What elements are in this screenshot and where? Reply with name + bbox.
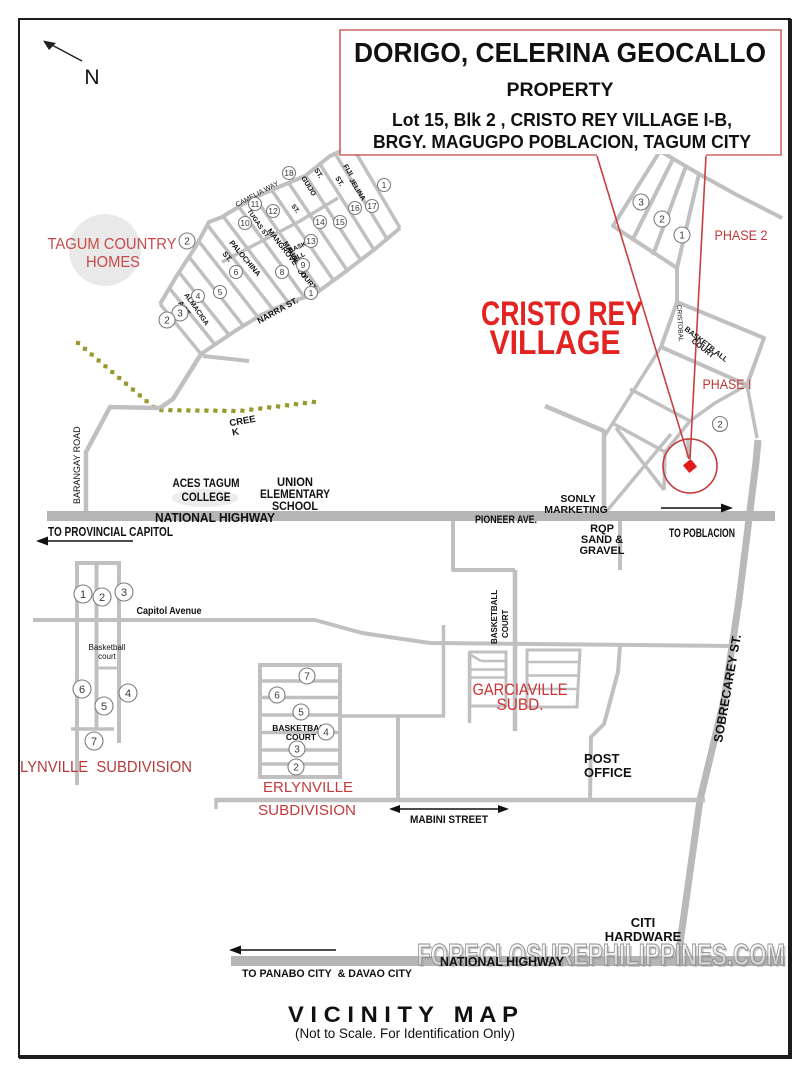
svg-text:2: 2	[293, 763, 299, 774]
svg-text:2: 2	[99, 592, 105, 604]
svg-text:PHASE 2: PHASE 2	[715, 227, 768, 243]
svg-text:Basketball: Basketball	[89, 643, 126, 652]
svg-text:MARKETING: MARKETING	[544, 504, 608, 516]
svg-text:BASKETBALL: BASKETBALL	[490, 590, 499, 644]
svg-text:Lot 15, Blk 2 , CRISTO REY VIL: Lot 15, Blk 2 , CRISTO REY VILLAGE I-B,	[392, 110, 732, 130]
svg-text:HOMES: HOMES	[86, 254, 140, 271]
svg-text:12: 12	[268, 206, 278, 216]
svg-text:TAGUM COUNTRY: TAGUM COUNTRY	[48, 236, 177, 253]
svg-text:SUBDIVISION: SUBDIVISION	[258, 802, 356, 819]
svg-text:7: 7	[304, 672, 310, 683]
svg-text:POST: POST	[584, 751, 619, 766]
svg-text:2: 2	[184, 237, 190, 248]
svg-text:court: court	[98, 652, 117, 661]
svg-text:17: 17	[367, 201, 377, 211]
svg-text:4: 4	[196, 291, 201, 301]
svg-text:1: 1	[309, 288, 314, 298]
svg-text:3: 3	[638, 198, 644, 209]
svg-text:GRAVEL: GRAVEL	[579, 545, 624, 557]
svg-text:6: 6	[274, 691, 280, 702]
svg-text:PROPERTY: PROPERTY	[507, 80, 614, 101]
svg-text:5: 5	[101, 701, 107, 713]
svg-text:COURT: COURT	[286, 732, 317, 742]
svg-text:2: 2	[164, 316, 170, 327]
svg-text:2: 2	[659, 215, 665, 226]
svg-text:N: N	[84, 66, 99, 89]
svg-text:VILLAGE: VILLAGE	[490, 324, 621, 362]
svg-text:6: 6	[234, 267, 239, 277]
svg-text:9: 9	[301, 260, 306, 270]
svg-text:COLLEGE: COLLEGE	[182, 490, 231, 504]
svg-text:11: 11	[251, 199, 260, 209]
svg-text:SUBD.: SUBD.	[497, 695, 544, 714]
svg-text:MABINI STREET: MABINI STREET	[410, 814, 488, 826]
svg-text:13: 13	[306, 236, 316, 246]
svg-text:PIONEER AVE.: PIONEER AVE.	[475, 514, 537, 526]
svg-text:TO PANABO CITY & DAVAO CITY: TO PANABO CITY & DAVAO CITY	[242, 968, 413, 980]
svg-text:14: 14	[315, 217, 325, 227]
svg-text:LYNVILLE SUBDIVISION: LYNVILLE SUBDIVISION	[20, 759, 192, 776]
svg-text:NATIONAL HIGHWAY: NATIONAL HIGHWAY	[440, 955, 565, 969]
svg-text:2: 2	[717, 419, 722, 430]
svg-text:6: 6	[79, 684, 85, 696]
svg-text:(Not to Scale. For Identificat: (Not to Scale. For Identification Only)	[295, 1026, 515, 1041]
svg-text:10: 10	[240, 218, 250, 228]
svg-text:CITI: CITI	[631, 915, 656, 930]
svg-text:TO POBLACION: TO POBLACION	[669, 528, 735, 540]
svg-text:Capitol Avenue: Capitol Avenue	[137, 605, 202, 617]
svg-text:18: 18	[284, 168, 294, 178]
svg-text:5: 5	[218, 287, 223, 297]
svg-text:NATIONAL HIGHWAY: NATIONAL HIGHWAY	[155, 510, 275, 525]
svg-text:7: 7	[91, 736, 97, 748]
svg-text:3: 3	[121, 587, 127, 599]
svg-text:BRGY. MAGUGPO POBLACION, TAGUM: BRGY. MAGUGPO POBLACION, TAGUM CITY	[373, 132, 751, 152]
svg-text:PHASE I: PHASE I	[703, 376, 752, 392]
svg-text:ACES TAGUM: ACES TAGUM	[173, 476, 240, 490]
svg-text:5: 5	[298, 708, 304, 719]
svg-text:1: 1	[679, 231, 685, 242]
svg-text:SCHOOL: SCHOOL	[272, 499, 318, 513]
svg-text:15: 15	[335, 217, 345, 227]
svg-text:TO PROVINCIAL CAPITOL: TO PROVINCIAL CAPITOL	[48, 525, 173, 539]
svg-text:ERLYNVILLE: ERLYNVILLE	[263, 779, 353, 796]
svg-text:HARDWARE: HARDWARE	[605, 929, 682, 944]
svg-text:4: 4	[125, 688, 131, 700]
svg-text:V I C I N I T Y M A P: V I C I N I T Y M A P	[288, 1002, 518, 1027]
svg-text:3: 3	[177, 309, 183, 320]
svg-text:1: 1	[80, 589, 86, 601]
svg-text:1: 1	[382, 180, 387, 190]
svg-text:3: 3	[294, 745, 300, 756]
svg-text:COURT: COURT	[501, 609, 510, 638]
svg-text:BARANGAY ROAD: BARANGAY ROAD	[72, 426, 82, 504]
svg-text:16: 16	[350, 203, 360, 213]
svg-text:8: 8	[280, 267, 285, 277]
svg-text:OFFICE: OFFICE	[584, 765, 632, 780]
svg-text:4: 4	[323, 728, 329, 739]
svg-text:DORIGO, CELERINA GEOCALLO: DORIGO, CELERINA GEOCALLO	[354, 37, 766, 68]
